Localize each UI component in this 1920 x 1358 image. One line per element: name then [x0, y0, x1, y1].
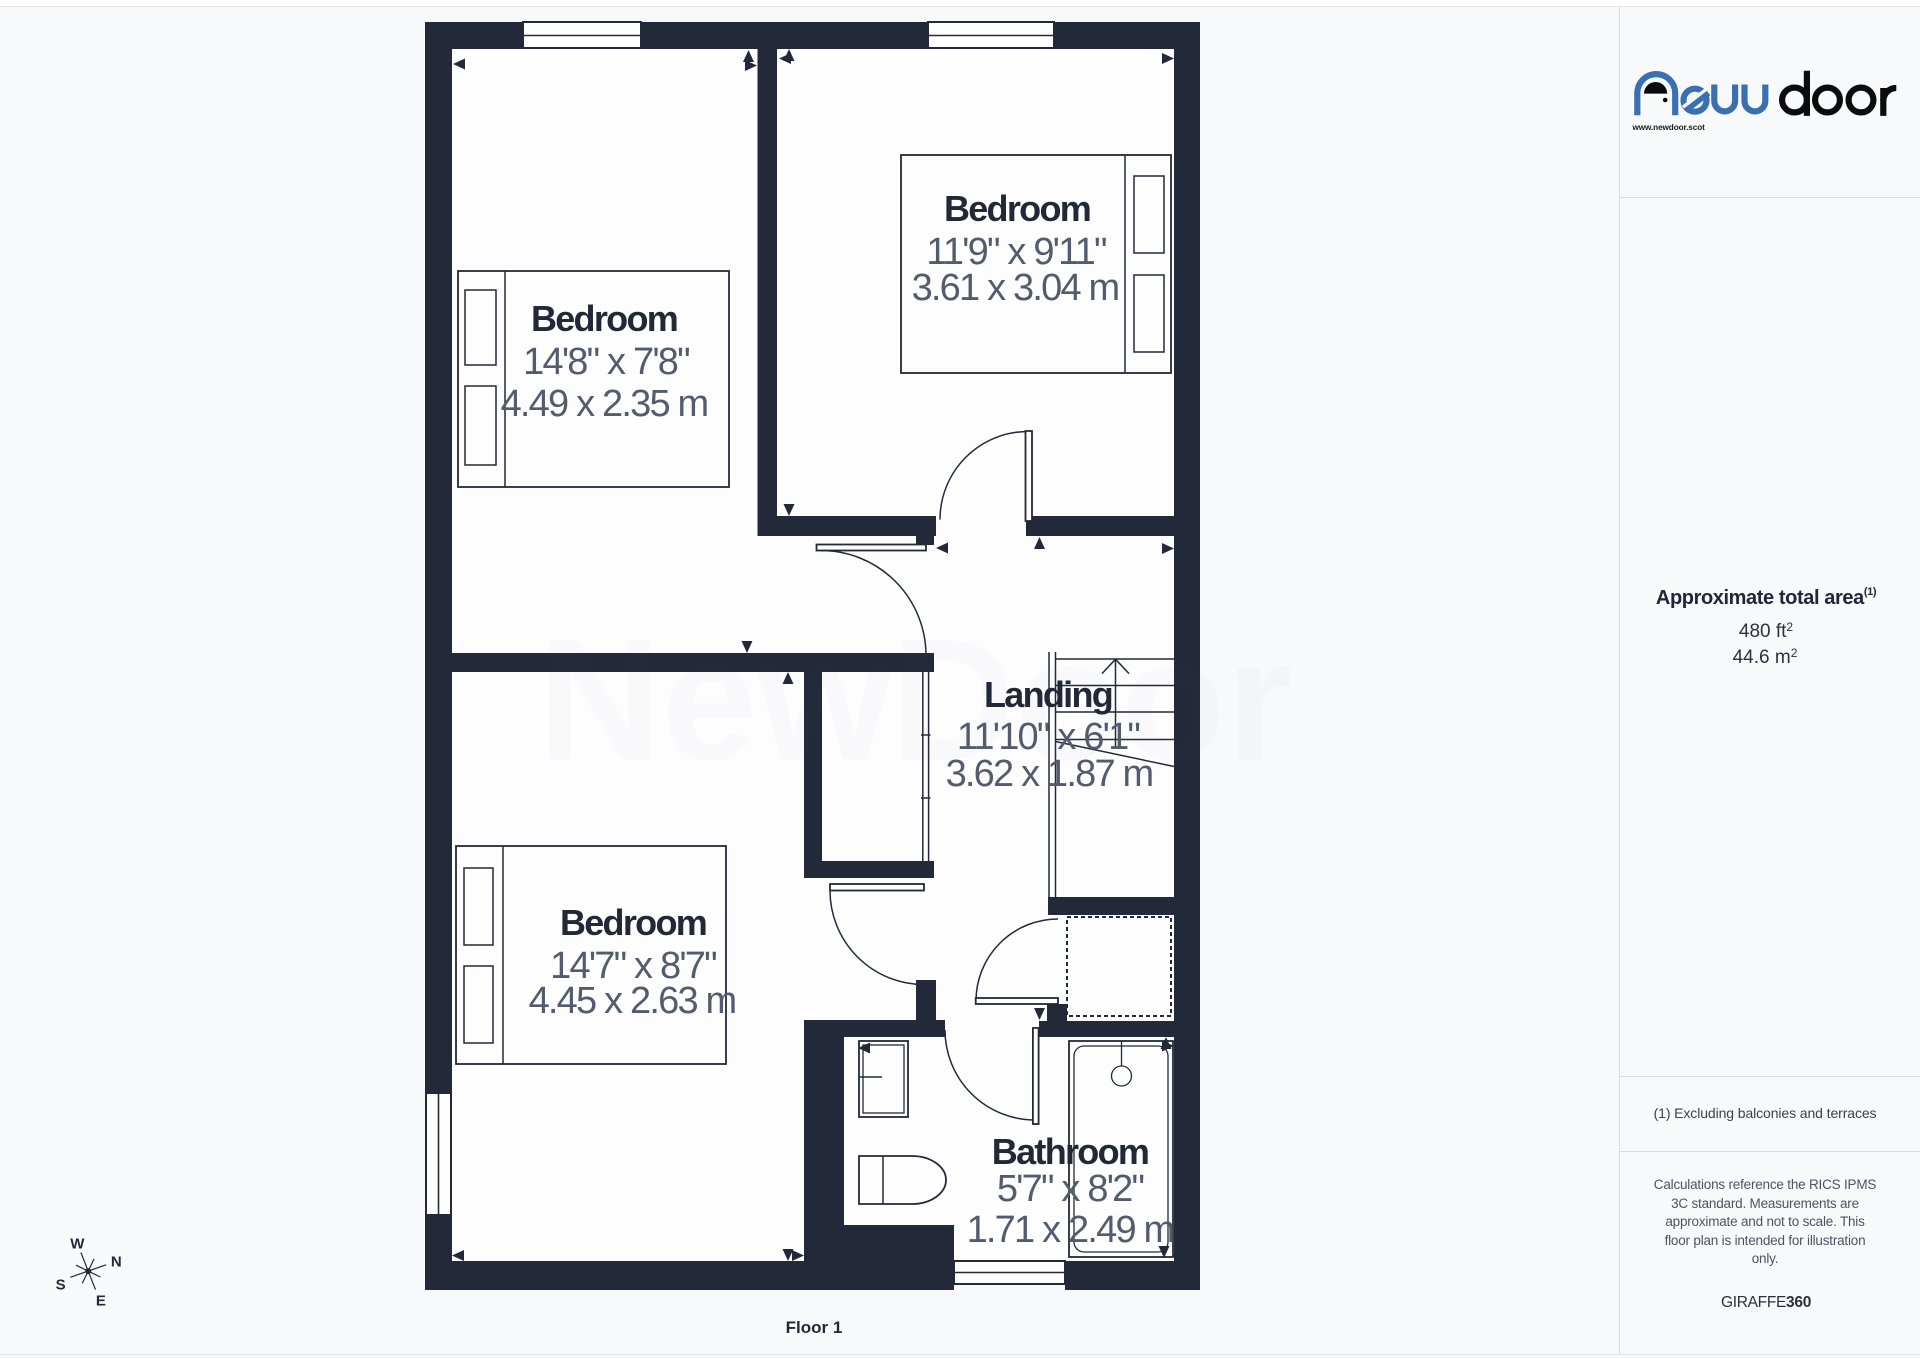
- svg-text:W: W: [70, 1236, 85, 1253]
- svg-text:E: E: [96, 1292, 106, 1309]
- svg-text:N: N: [111, 1253, 122, 1270]
- svg-text:S: S: [56, 1277, 66, 1294]
- svg-text:www.newdoor.scot: www.newdoor.scot: [1632, 123, 1706, 132]
